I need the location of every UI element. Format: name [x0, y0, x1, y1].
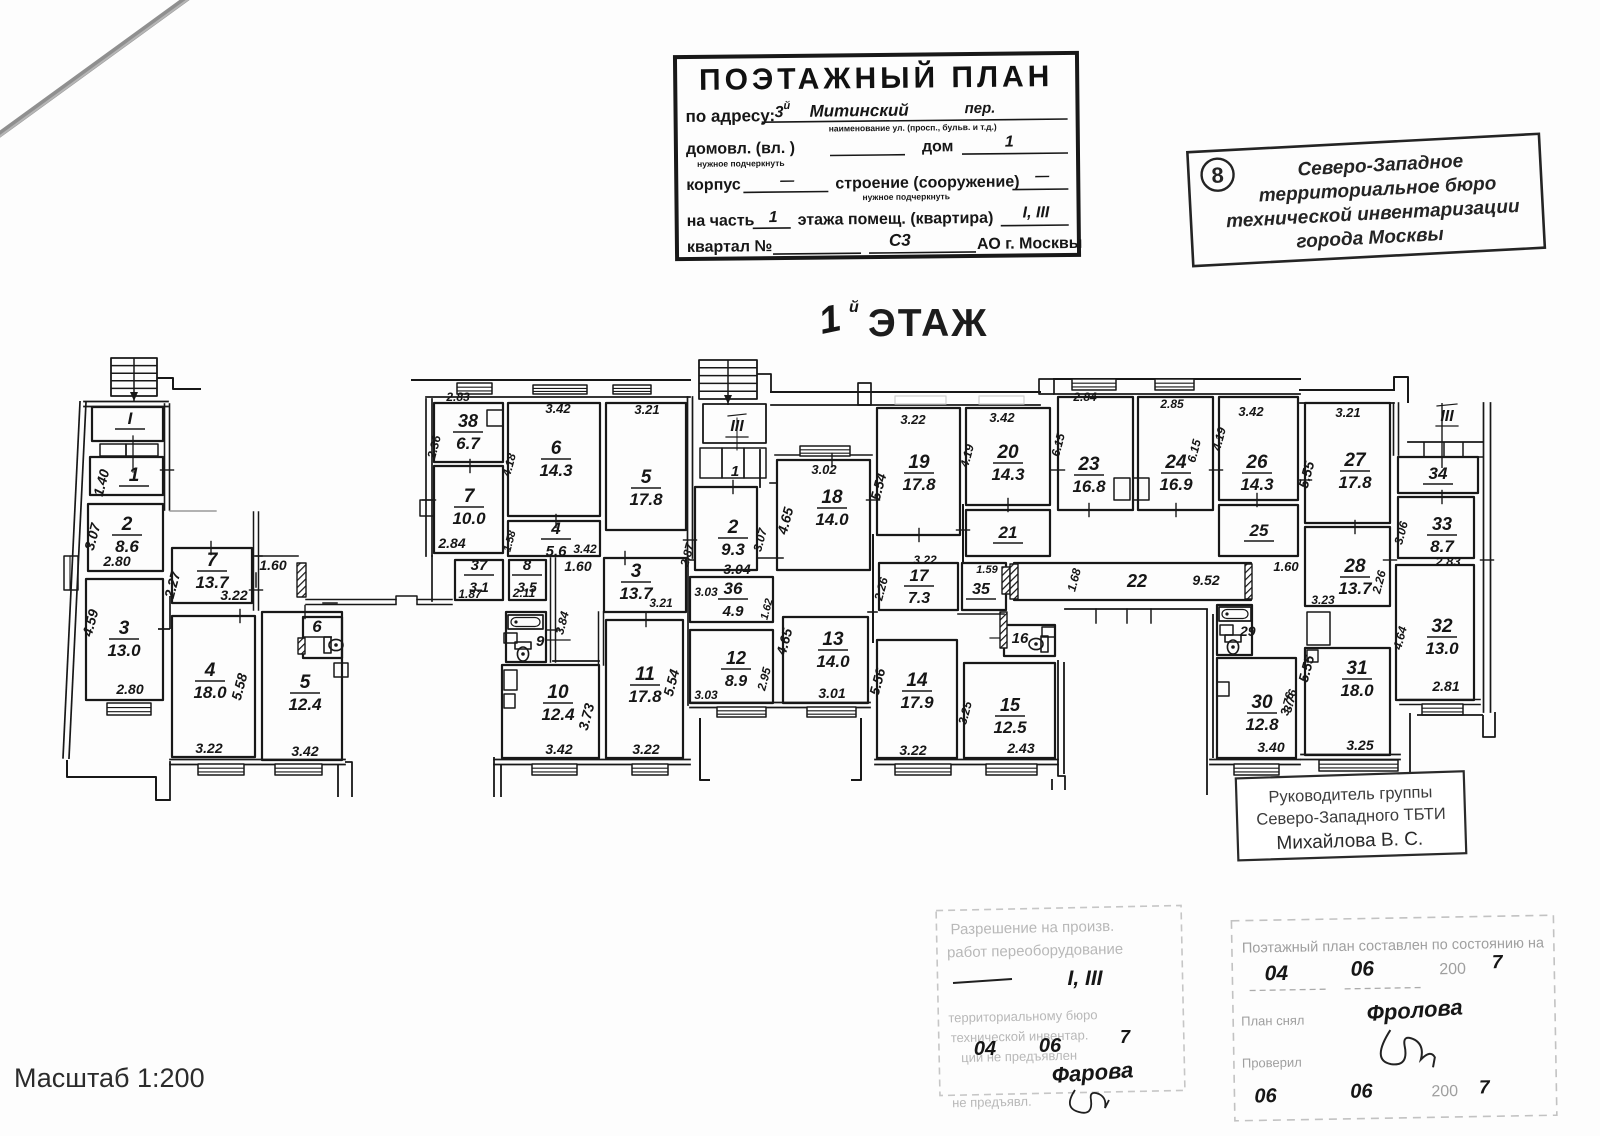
svg-text:33: 33	[1432, 514, 1452, 534]
svg-text:План снял: План снял	[1241, 1013, 1305, 1029]
svg-text:1.60: 1.60	[564, 558, 591, 574]
svg-text:не предъявл.: не предъявл.	[952, 1094, 1032, 1111]
svg-text:06: 06	[1254, 1085, 1278, 1107]
svg-text:3.22: 3.22	[220, 587, 247, 603]
svg-text:13.7: 13.7	[1338, 579, 1373, 598]
svg-text:III: III	[1440, 408, 1454, 425]
svg-text:12.4: 12.4	[541, 705, 575, 724]
svg-text:8.9: 8.9	[725, 673, 747, 690]
svg-text:4: 4	[204, 660, 216, 681]
svg-text:корпус: корпус	[686, 176, 741, 194]
svg-text:3.22: 3.22	[195, 740, 222, 756]
svg-text:3.25: 3.25	[1346, 737, 1373, 753]
svg-text:Разрешение на произв.: Разрешение на произв.	[950, 918, 1114, 938]
svg-text:17.8: 17.8	[628, 687, 662, 706]
svg-text:1: 1	[769, 209, 778, 226]
svg-text:26: 26	[1245, 452, 1268, 473]
svg-text:3.21: 3.21	[1335, 405, 1360, 420]
svg-text:04: 04	[974, 1038, 996, 1060]
svg-text:8: 8	[523, 557, 532, 574]
svg-text:Проверил: Проверил	[1242, 1055, 1302, 1071]
svg-text:12.5: 12.5	[993, 718, 1027, 737]
svg-text:1: 1	[1005, 134, 1014, 151]
svg-text:23: 23	[1077, 454, 1100, 475]
svg-text:12.8: 12.8	[1245, 715, 1279, 734]
svg-text:2.81: 2.81	[1431, 678, 1459, 694]
svg-text:этажа помещ. (квартира): этажа помещ. (квартира)	[798, 210, 994, 229]
svg-text:18: 18	[821, 487, 843, 508]
svg-text:й: й	[783, 100, 790, 112]
svg-text:2: 2	[727, 517, 739, 538]
svg-text:6.7: 6.7	[456, 434, 481, 453]
svg-text:строение (сооружение): строение (сооружение)	[835, 174, 1019, 193]
svg-text:21: 21	[998, 523, 1018, 542]
svg-text:3.42: 3.42	[1238, 404, 1264, 419]
svg-text:нужное подчеркнуть: нужное подчеркнуть	[862, 191, 950, 202]
svg-text:квартал №: квартал №	[687, 238, 772, 256]
svg-text:3.01: 3.01	[818, 685, 845, 701]
svg-text:5: 5	[300, 672, 311, 693]
svg-text:3.40: 3.40	[1257, 739, 1284, 755]
svg-text:3.21: 3.21	[649, 596, 673, 610]
svg-text:15: 15	[1000, 695, 1021, 715]
svg-text:9.52: 9.52	[1192, 572, 1219, 588]
svg-text:3.42: 3.42	[291, 743, 318, 759]
svg-text:22: 22	[1126, 571, 1147, 591]
svg-text:04: 04	[1264, 962, 1288, 985]
svg-text:Митинский: Митинский	[809, 101, 909, 121]
svg-text:12: 12	[726, 648, 746, 668]
svg-text:10.0: 10.0	[452, 509, 486, 528]
svg-text:4.9: 4.9	[722, 603, 745, 620]
svg-text:17: 17	[910, 566, 930, 585]
svg-text:24: 24	[1164, 452, 1187, 473]
svg-text:13.0: 13.0	[1425, 639, 1459, 658]
svg-text:ЭТАЖ: ЭТАЖ	[868, 302, 989, 345]
svg-text:16.9: 16.9	[1159, 475, 1193, 494]
svg-text:3: 3	[774, 104, 783, 121]
svg-text:5: 5	[641, 467, 652, 488]
svg-text:2.85: 2.85	[1159, 397, 1184, 411]
svg-text:28: 28	[1343, 556, 1366, 577]
svg-text:3.42: 3.42	[545, 741, 572, 757]
svg-text:38: 38	[458, 411, 478, 431]
svg-text:территориальному бюро: территориальному бюро	[948, 1007, 1097, 1025]
svg-text:19: 19	[908, 452, 930, 473]
svg-text:14.0: 14.0	[815, 510, 849, 529]
svg-text:на часть: на часть	[687, 212, 755, 230]
svg-text:34: 34	[1429, 464, 1448, 483]
svg-text:3.23: 3.23	[1311, 593, 1335, 607]
svg-text:31: 31	[1346, 658, 1367, 679]
svg-text:3.42: 3.42	[989, 410, 1015, 425]
svg-text:домовл. (вл. ): домовл. (вл. )	[686, 140, 795, 158]
svg-text:16.8: 16.8	[1072, 477, 1106, 496]
svg-text:37: 37	[471, 557, 488, 574]
svg-text:14: 14	[906, 670, 928, 691]
svg-text:3.04: 3.04	[723, 561, 750, 577]
svg-text:2.11: 2.11	[512, 586, 536, 600]
svg-text:3.22: 3.22	[913, 553, 937, 567]
svg-text:18.0: 18.0	[193, 683, 227, 702]
svg-text:32: 32	[1431, 616, 1453, 637]
svg-text:6: 6	[312, 617, 322, 636]
svg-text:13.0: 13.0	[107, 641, 141, 660]
svg-text:200: 200	[1439, 961, 1466, 978]
svg-text:17.8: 17.8	[629, 490, 663, 509]
svg-text:35: 35	[972, 581, 991, 598]
svg-text:36: 36	[724, 579, 743, 598]
svg-text:—: —	[1034, 167, 1050, 183]
svg-text:1: 1	[731, 463, 739, 480]
svg-text:1: 1	[129, 465, 140, 486]
svg-text:I, III: I, III	[1023, 204, 1050, 221]
svg-text:1.60: 1.60	[1273, 559, 1299, 574]
svg-text:06: 06	[1039, 1035, 1062, 1057]
svg-text:наименование ул. (просп., буль: наименование ул. (просп., бульв. и т.д.)	[829, 122, 997, 134]
svg-text:пер.: пер.	[964, 100, 995, 117]
svg-text:06: 06	[1350, 957, 1374, 980]
svg-text:8: 8	[1211, 162, 1225, 188]
svg-text:7: 7	[1479, 1077, 1491, 1098]
svg-text:3.21: 3.21	[634, 402, 659, 417]
svg-text:2.80: 2.80	[115, 681, 143, 697]
svg-text:3.03: 3.03	[694, 688, 718, 702]
svg-text:200: 200	[1431, 1083, 1458, 1100]
svg-text:Масштаб 1:200: Масштаб 1:200	[14, 1063, 205, 1093]
svg-text:1.87: 1.87	[458, 587, 483, 601]
svg-text:11: 11	[635, 664, 655, 685]
svg-text:10: 10	[547, 682, 569, 703]
svg-text:06: 06	[1350, 1080, 1374, 1102]
svg-text:дом: дом	[922, 138, 954, 155]
svg-text:I, III: I, III	[1067, 967, 1103, 990]
svg-text:12.4: 12.4	[288, 695, 322, 714]
svg-text:нужное подчеркнуть: нужное подчеркнуть	[697, 158, 785, 169]
svg-text:3.42: 3.42	[545, 401, 571, 416]
svg-text:14.3: 14.3	[1240, 475, 1274, 494]
svg-text:13: 13	[822, 629, 844, 650]
svg-text:7.3: 7.3	[908, 590, 930, 607]
svg-text:3.22: 3.22	[900, 412, 926, 427]
svg-text:2: 2	[121, 514, 133, 535]
svg-text:2.83: 2.83	[445, 390, 470, 404]
svg-text:14.0: 14.0	[816, 652, 850, 671]
svg-text:1.60: 1.60	[259, 557, 286, 573]
svg-text:2.43: 2.43	[1006, 740, 1034, 756]
svg-text:ПОЭТАЖНЫЙ ПЛАН: ПОЭТАЖНЫЙ ПЛАН	[699, 59, 1054, 97]
svg-text:технической инвентар.: технической инвентар.	[951, 1027, 1089, 1045]
svg-text:18.0: 18.0	[1340, 681, 1374, 700]
svg-text:17.9: 17.9	[900, 693, 934, 712]
svg-text:С3: С3	[889, 231, 911, 250]
svg-text:3.42: 3.42	[573, 542, 597, 556]
svg-text:3: 3	[119, 618, 130, 639]
svg-text:1.59: 1.59	[976, 564, 998, 576]
svg-text:й: й	[849, 299, 859, 316]
svg-text:2.84: 2.84	[1072, 390, 1097, 404]
svg-text:7: 7	[1492, 952, 1504, 973]
svg-text:6: 6	[551, 438, 562, 459]
svg-text:3.02: 3.02	[811, 462, 837, 477]
svg-text:7: 7	[464, 486, 476, 507]
svg-text:по адресу:: по адресу:	[685, 106, 775, 126]
svg-text:9.3: 9.3	[721, 540, 745, 559]
svg-text:3.22: 3.22	[899, 742, 926, 758]
svg-text:3.03: 3.03	[694, 585, 718, 599]
svg-text:АО г. Москвы: АО г. Москвы	[977, 235, 1083, 253]
svg-text:14.3: 14.3	[539, 461, 573, 480]
svg-text:30: 30	[1251, 692, 1273, 713]
svg-text:—: —	[779, 172, 795, 188]
svg-text:2.84: 2.84	[437, 535, 465, 551]
svg-text:7: 7	[207, 550, 219, 571]
svg-text:14.3: 14.3	[991, 465, 1025, 484]
svg-text:2.80: 2.80	[102, 553, 130, 569]
svg-text:17.8: 17.8	[902, 475, 936, 494]
svg-text:17.8: 17.8	[1338, 473, 1372, 492]
svg-text:16: 16	[1012, 630, 1029, 647]
svg-text:9: 9	[536, 633, 545, 650]
svg-text:25: 25	[1249, 521, 1269, 540]
svg-text:3: 3	[631, 561, 642, 582]
svg-text:3.22: 3.22	[632, 741, 659, 757]
svg-text:7: 7	[1120, 1027, 1131, 1047]
svg-text:2.83: 2.83	[1434, 554, 1461, 569]
svg-text:20: 20	[996, 442, 1019, 463]
svg-text:27: 27	[1343, 450, 1367, 471]
